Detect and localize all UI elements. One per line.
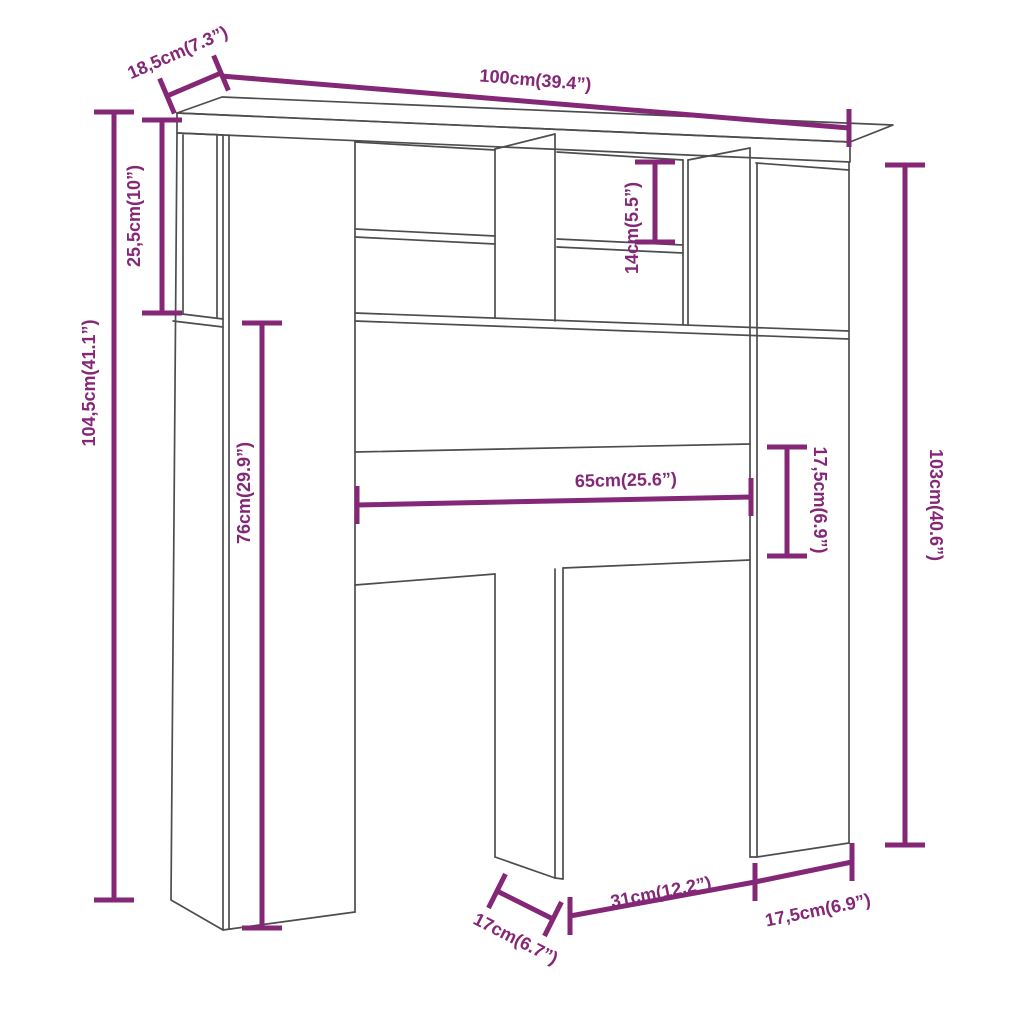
label-side-height: 103cm(40.6”) (926, 449, 946, 561)
diagram-background (0, 0, 1024, 1024)
label-total-height: 104,5cm(41.1”) (79, 319, 99, 446)
dimension-diagram: 18,5cm(7.3”) 100cm(39.4”) 104,5cm(41.1”)… (0, 0, 1024, 1024)
label-rail-height: 17,5cm(6.9”) (810, 446, 830, 553)
middle-leg-bottom-thickness (555, 878, 563, 879)
headboard-cabinet-diagram: 18,5cm(7.3”) 100cm(39.4”) 104,5cm(41.1”)… (0, 0, 1024, 1024)
label-opening-width: 65cm(25.6”) (575, 469, 677, 491)
label-column-inner-height: 76cm(29.9”) (234, 442, 254, 544)
label-top-compartment-height: 25,5cm(10”) (124, 165, 144, 267)
label-cubby-height: 14cm(5.5”) (622, 182, 642, 274)
